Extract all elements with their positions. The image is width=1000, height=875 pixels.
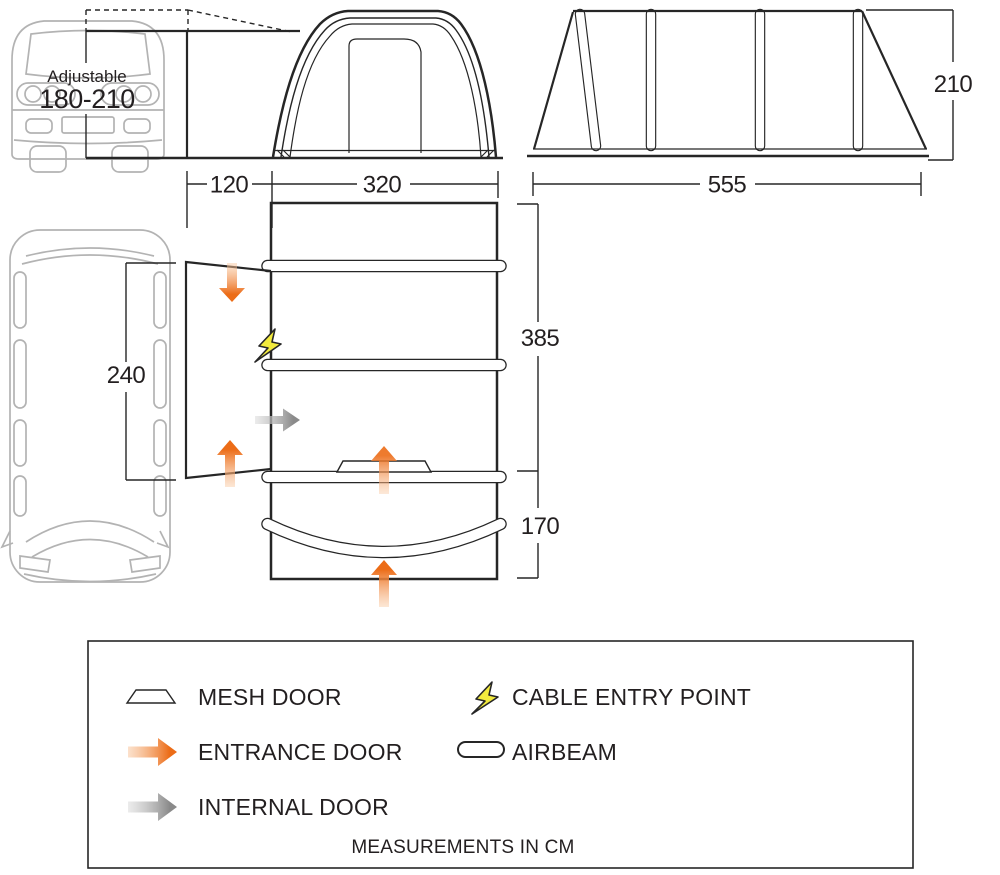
legend: MESH DOOR CABLE ENTRY POINT ENTRANCE DOO… <box>88 641 913 868</box>
front-slope <box>534 12 573 149</box>
dimension-385-170: 385 170 <box>517 204 559 578</box>
dim-porch-depth: 170 <box>521 513 560 540</box>
dim-side-length: 555 <box>708 172 747 199</box>
floorplan-outline <box>271 203 497 579</box>
awning-dimension-diagram: Adjustable 180-210 120 320 <box>0 0 1000 875</box>
side-mirror <box>157 531 168 547</box>
awning-outer-profile <box>273 11 496 157</box>
internal-door-arrow <box>255 409 300 432</box>
dim-tunnel-width: 120 <box>210 172 249 199</box>
dim-main-depth: 385 <box>521 325 560 352</box>
entrance-door-arrow <box>371 560 397 607</box>
dimension-120-320: 120 320 <box>187 171 498 228</box>
projection-line <box>188 10 292 32</box>
dim-height: 210 <box>934 71 973 98</box>
legend-mesh-door-label: MESH DOOR <box>198 684 342 710</box>
diagram-canvas: Adjustable 180-210 120 320 <box>0 0 1000 875</box>
mesh-door-icon <box>127 690 175 703</box>
adjustable-height-annotation: Adjustable 180-210 <box>39 10 292 158</box>
awning-front-view <box>86 11 503 158</box>
adjustable-value: 180-210 <box>39 84 135 114</box>
legend-internal-door-label: INTERNAL DOOR <box>198 794 389 820</box>
legend-airbeam-label: AIRBEAM <box>512 739 617 765</box>
entrance-door-arrow <box>217 440 243 487</box>
legend-footnote: MEASUREMENTS IN CM <box>351 837 574 858</box>
dim-door-opening: 240 <box>107 362 146 389</box>
dimension-210: 210 <box>866 10 972 160</box>
floorplan <box>186 203 501 607</box>
cable-entry-point-icon <box>255 329 281 362</box>
dimension-555: 555 <box>533 172 921 199</box>
rear-slope <box>862 11 926 149</box>
van-top-view <box>2 230 170 582</box>
side-mirror <box>2 531 13 547</box>
legend-cable-entry-label: CABLE ENTRY POINT <box>512 684 751 710</box>
awning-side-view <box>527 11 929 156</box>
legend-entrance-door-label: ENTRANCE DOOR <box>198 739 403 765</box>
front-door-outline <box>349 39 421 153</box>
airbeam-tube-curved <box>268 524 501 552</box>
dim-front-width: 320 <box>363 172 402 199</box>
